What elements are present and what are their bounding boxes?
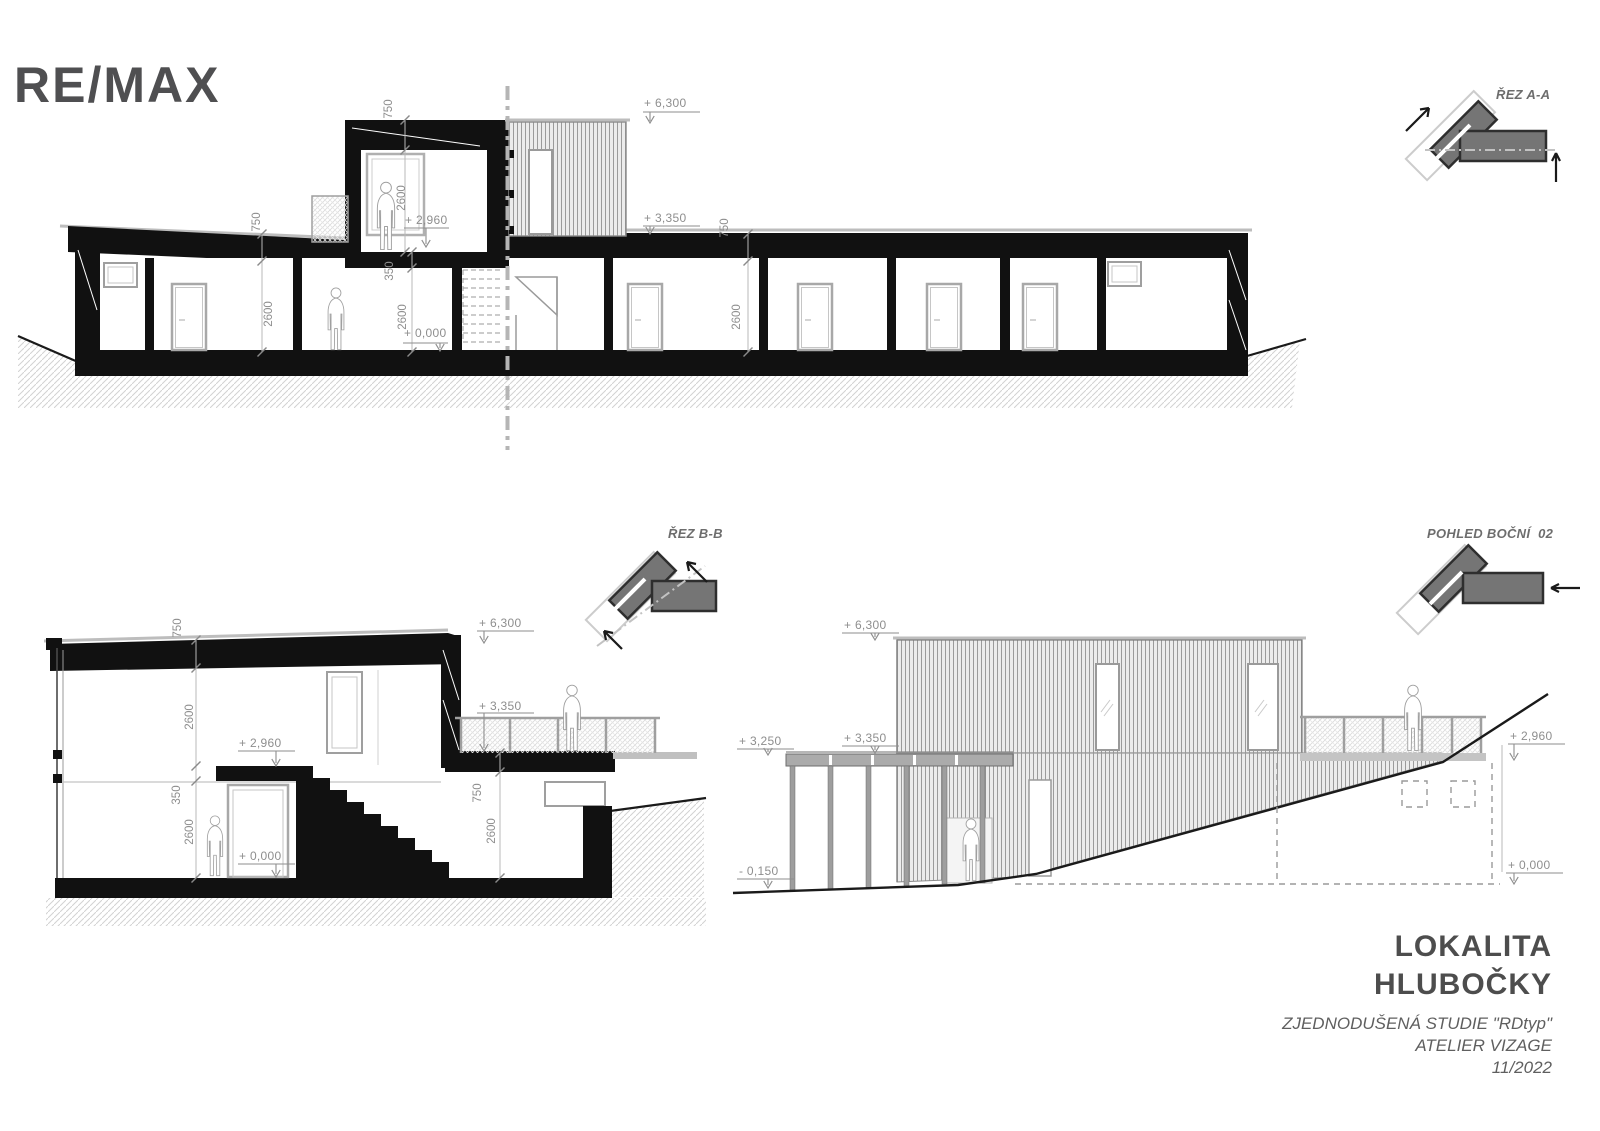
- level-label: + 6,300: [479, 616, 521, 630]
- ground-hatch: [612, 799, 704, 897]
- roof-slab: [507, 233, 1248, 262]
- level-label: + 2,960: [405, 213, 447, 227]
- glass-door: [228, 785, 288, 877]
- dim-label: 2600: [263, 292, 275, 336]
- dim-label: 750: [472, 771, 484, 815]
- keyplan-icon-rez-bb: [586, 552, 716, 649]
- ground-hatch-center: [78, 376, 1248, 408]
- dim-label: 2600: [397, 295, 409, 339]
- level-label: + 0,000: [239, 849, 281, 863]
- level-label: + 6,300: [844, 618, 886, 632]
- level-label: + 2,960: [239, 736, 281, 750]
- dim-label: 2600: [396, 176, 408, 220]
- dim-label: 2600: [184, 695, 196, 739]
- partition-wall: [452, 258, 462, 350]
- dim-label: 350: [171, 773, 183, 817]
- small-window: [1108, 262, 1141, 286]
- terrace-deck: [445, 751, 615, 772]
- level-label: + 6,300: [644, 96, 686, 110]
- interior-door: [798, 284, 832, 350]
- floor-slab: [55, 878, 612, 898]
- drawing-sheet: RE/MAX ŘEZ A-A ŘEZ B-B POHLED BOČNÍ 02 +…: [0, 0, 1600, 1131]
- deck-extension: [613, 752, 697, 759]
- level-label: + 3,350: [479, 699, 521, 713]
- dim-label: 750: [383, 87, 395, 131]
- interior-door: [1023, 284, 1057, 350]
- view-direction-arrows: [1551, 584, 1580, 592]
- interior-door: [172, 284, 206, 350]
- dim-label: 2600: [184, 810, 196, 854]
- section-bb-drawing: [44, 630, 706, 926]
- dim-label: 750: [172, 606, 184, 650]
- view-title-rez-aa: ŘEZ A-A: [1496, 87, 1550, 102]
- railing-mesh: [312, 196, 348, 242]
- title-study: ZJEDNODUŠENÁ STUDIE "RDtyp": [1092, 1013, 1552, 1035]
- dim-label: 350: [384, 249, 396, 293]
- ground-hatch-left: [18, 336, 78, 408]
- title-block: LOKALITA HLUBOČKY ZJEDNODUŠENÁ STUDIE "R…: [1092, 928, 1552, 1079]
- tall-window: [1248, 664, 1278, 750]
- entry-door: [1029, 780, 1051, 876]
- clad-upper-box: [509, 122, 626, 236]
- ground-hatch-right: [1247, 340, 1300, 408]
- exterior-wall: [583, 806, 612, 898]
- slit-window: [545, 782, 605, 806]
- title-location-line2: HLUBOČKY: [1092, 966, 1552, 1004]
- dim-label: 750: [719, 206, 731, 250]
- interior-door: [628, 284, 662, 350]
- landing-slab: [216, 766, 296, 781]
- partition-wall: [604, 258, 613, 350]
- small-window: [104, 263, 137, 287]
- level-label: + 3,250: [739, 734, 781, 748]
- section-aa-drawing: [18, 86, 1306, 450]
- interior-door: [927, 284, 961, 350]
- keyplan-icon-pohled-bocni: [1397, 545, 1580, 634]
- exterior-wall: [1227, 235, 1248, 376]
- partition-wall: [887, 258, 896, 350]
- title-date: 11/2022: [1092, 1057, 1552, 1079]
- level-label: + 0,000: [404, 326, 446, 340]
- keyplan-icon-rez-aa: [1406, 91, 1560, 182]
- person-silhouette: [207, 816, 222, 876]
- level-label: + 0,000: [1508, 858, 1550, 872]
- level-label: + 2,960: [1510, 729, 1552, 743]
- partition-wall: [293, 258, 302, 350]
- level-label: + 3,350: [644, 211, 686, 225]
- exterior-wall: [75, 233, 100, 376]
- partition-wall: [759, 258, 768, 350]
- title-studio: ATELIER VIZAGE: [1092, 1035, 1552, 1057]
- dim-label: 2600: [731, 295, 743, 339]
- pergola-beam: [786, 754, 1013, 766]
- level-label: - 0,150: [739, 864, 778, 878]
- level-label: + 3,350: [844, 731, 886, 745]
- staircase: [296, 766, 449, 878]
- dim-label: 2600: [486, 809, 498, 853]
- view-title-rez-bb: ŘEZ B-B: [668, 526, 723, 541]
- partition-wall: [145, 258, 154, 350]
- ground-hatch: [46, 898, 706, 926]
- dim-label: 750: [251, 200, 263, 244]
- side-elevation-drawing: [733, 633, 1565, 893]
- floor-slab: [75, 350, 1248, 376]
- partition-wall: [1000, 258, 1010, 350]
- partition-wall: [1097, 258, 1106, 350]
- remax-logo: RE/MAX: [14, 56, 220, 114]
- view-title-pohled-bocni: POHLED BOČNÍ 02: [1427, 526, 1553, 541]
- slit-window: [529, 150, 552, 234]
- railing-mesh: [1305, 718, 1482, 753]
- title-location-line1: LOKALITA: [1092, 928, 1552, 966]
- walkway-deck: [1300, 753, 1486, 761]
- tall-window: [1096, 664, 1119, 750]
